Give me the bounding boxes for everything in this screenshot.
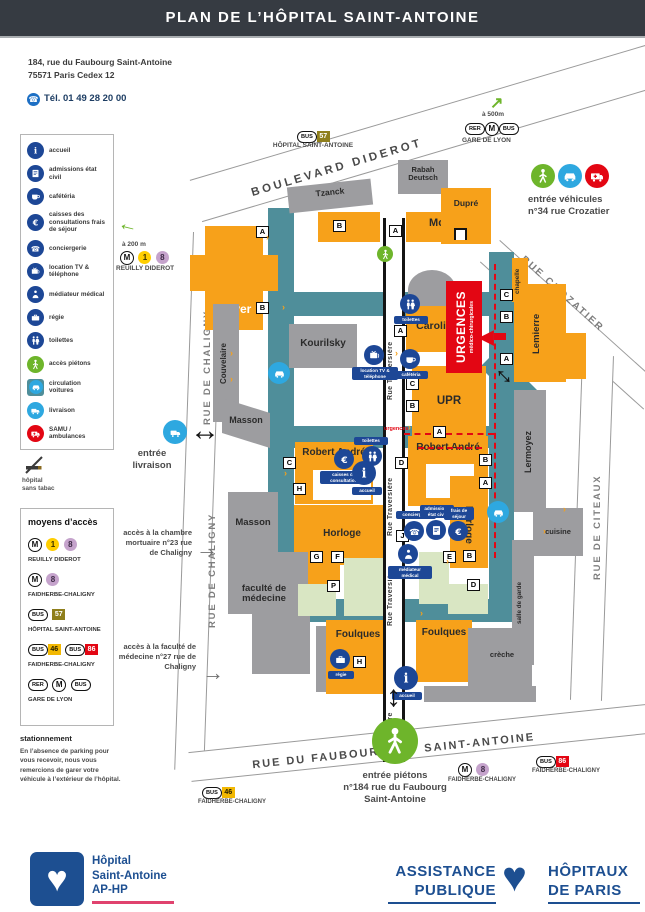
door-chevron <box>310 514 313 524</box>
door-chevron <box>428 642 431 652</box>
dupre-door <box>454 228 467 240</box>
mortuary-access-label: accès à la chambre mortuaire n°23 rue de… <box>120 528 192 557</box>
stop-label: REUILLY DIDEROT <box>116 265 174 272</box>
internal-road-east <box>489 252 514 622</box>
building-label-rabah-deutsch: Rabah Deutsch <box>399 166 447 182</box>
door-chevron <box>395 348 398 358</box>
pedestrian-entrance-icon <box>372 718 418 764</box>
poi-label: régie <box>328 671 354 679</box>
car-icon <box>487 501 509 523</box>
building-label-lermoyez: Lermoyez <box>524 412 534 492</box>
building-letter: B <box>256 302 269 314</box>
legend-item: SAMU / ambulances <box>27 425 107 442</box>
building-mayer-wing <box>190 255 278 291</box>
poi-label: cafétéria <box>394 371 428 379</box>
legend-item: médiateur médical <box>27 286 107 303</box>
ambulance-icon <box>27 425 44 442</box>
building-letter: F <box>331 551 344 563</box>
tv-phone-icon <box>27 263 44 280</box>
door-chevron <box>446 556 449 566</box>
access-box: moyens d’accès M 1 8 REUILLY DIDEROT M 8… <box>20 508 114 726</box>
access-row: BUS46 BUS86 <box>28 641 106 659</box>
building-creche-wing <box>424 686 536 702</box>
mediator-icon <box>398 544 418 564</box>
aphp-logo-left: ASSISTANCE PUBLIQUE <box>388 862 496 904</box>
poi-label: accueil <box>352 487 382 495</box>
building-letter: B <box>500 311 513 323</box>
street-label-citeaux: RUE DE CITEAUX <box>592 455 603 580</box>
toilets-icon <box>27 332 44 349</box>
building-moiana-west <box>318 212 380 242</box>
urgences-arrow-icon <box>479 326 494 349</box>
building-label-faculte: faculté de médecine <box>232 584 296 605</box>
building-letter: D <box>395 457 408 469</box>
pedestrian-icon <box>27 356 44 373</box>
building-label-kourilsky: Kourilsky <box>290 339 356 350</box>
legend-item: conciergerie <box>27 240 107 257</box>
stop-label: FAIDHERBE-CHALIGNY <box>442 777 522 783</box>
building-letter: B <box>479 454 492 466</box>
building-letter: H <box>353 656 366 668</box>
info-icon <box>27 142 44 159</box>
building-letter: B <box>333 220 346 232</box>
conciergerie-icon <box>27 240 44 257</box>
hospital-map-page: PLAN DE L’HÔPITAL SAINT-ANTOINE 184, rue… <box>0 0 645 912</box>
legend-item: accès piétons <box>27 356 107 373</box>
building-letter: P <box>327 580 340 592</box>
no-smoking-label: hôpital sans tabac <box>22 477 55 493</box>
mediator-icon <box>27 286 44 303</box>
pedestrian-entrance-label: entrée piétons n°184 rue du Faubourg Sai… <box>330 770 460 806</box>
legend-item: accueil <box>27 142 107 159</box>
cafeteria-icon <box>400 349 420 369</box>
legend-item: toilettes <box>27 332 107 349</box>
truck-icon <box>27 402 44 419</box>
access-row: M 1 8 <box>28 536 106 554</box>
ambulance-route-return <box>418 447 482 449</box>
legend-item: circulation voitures <box>27 379 107 396</box>
door-chevron <box>230 348 233 358</box>
direction-arrow-icon <box>490 93 503 113</box>
building-letter: B <box>463 550 476 562</box>
building-lemierre-wing <box>566 333 586 379</box>
legend-item: admissions état civil <box>27 165 107 182</box>
building-label-creche: crèche <box>480 651 524 659</box>
urgences-block: URGENCES médico-chirurgicales <box>446 281 482 373</box>
door-chevron <box>282 302 285 312</box>
address-line2: 75571 Paris Cedex 12 <box>28 69 172 82</box>
building-letter: B <box>406 400 419 412</box>
door-chevron <box>484 226 487 236</box>
access-row: M 8 <box>28 571 106 589</box>
legend-item: caisses des consultations frais de séjou… <box>27 211 107 233</box>
header-bar: PLAN DE L’HÔPITAL SAINT-ANTOINE <box>0 0 645 38</box>
briefcase-icon <box>330 649 350 669</box>
stop-label: HÔPITAL SAINT-ANTOINE <box>255 142 371 149</box>
building-letter: G <box>310 551 323 563</box>
poi-label: médiateur médical <box>388 566 432 579</box>
distance-label: à 200 m <box>122 241 146 248</box>
ambulance-route-horizontal <box>404 433 494 435</box>
vehicle-entrance-label: entrée véhicules n°34 rue Crozatier <box>528 194 609 218</box>
pedestrian-icon <box>377 246 393 262</box>
building-label-horloge-west: Horloge <box>316 529 368 540</box>
conciergerie-icon <box>404 521 424 541</box>
two-way-arrow-icon <box>190 414 220 448</box>
building-label-upr: UPR <box>420 395 478 407</box>
poi-label: toilettes <box>394 316 428 324</box>
building-strip <box>316 626 326 692</box>
building-letter: H <box>293 483 306 495</box>
info-icon <box>352 461 376 485</box>
access-row: RER M BUS <box>28 676 106 694</box>
gare-de-lyon-badges: RERMBUS <box>465 120 519 138</box>
door-chevron <box>348 642 351 652</box>
car-icon <box>268 362 290 384</box>
access-title: moyens d’accès <box>28 517 106 527</box>
admissions-icon <box>426 520 446 540</box>
heart-icon <box>502 856 527 898</box>
building-faculte-south <box>252 612 310 674</box>
truck-icon <box>163 420 187 444</box>
euro-icon <box>27 214 44 231</box>
phone-icon <box>27 93 40 106</box>
page-title: PLAN DE L’HÔPITAL SAINT-ANTOINE <box>0 0 645 36</box>
access-row: BUS 57 <box>28 606 106 624</box>
building-letter: A <box>433 426 446 438</box>
urgences-title: URGENCES <box>454 291 468 363</box>
door-chevron <box>230 374 233 384</box>
poi-label: frais de séjour <box>444 507 474 520</box>
hospital-logo <box>30 852 84 906</box>
address-line1: 184, rue du Faubourg Saint-Antoine <box>28 56 172 69</box>
ambulance-icon <box>585 164 609 188</box>
ambulance-route-label: urgences <box>384 426 408 432</box>
poi-label: location TV & téléphone <box>352 367 398 380</box>
building-label-foulques-west: Foulques <box>328 630 388 641</box>
stop-label: FAIDHERBE-CHALIGNY <box>524 768 608 774</box>
toilets-icon <box>400 294 420 314</box>
door-chevron <box>266 232 269 242</box>
euro-icon <box>334 449 354 469</box>
building-label-foulques-east: Foulques <box>417 628 471 639</box>
tv-phone-icon <box>364 345 384 365</box>
admissions-icon <box>27 165 44 182</box>
building-letter: C <box>500 289 513 301</box>
building-letter: D <box>467 579 480 591</box>
legend-item: cafétéria <box>27 188 107 205</box>
street-label-traversiere: Rue Traversière <box>387 466 394 536</box>
car-icon <box>558 164 582 188</box>
door-chevron <box>284 468 287 478</box>
building-label-dupre: Dupré <box>443 199 489 208</box>
car-icon <box>27 379 44 396</box>
legend: accueil admissions état civil cafétéria … <box>20 134 114 450</box>
building-letter: A <box>479 477 492 489</box>
direction-arrow-icon <box>116 212 141 239</box>
legend-item: régie <box>27 309 107 326</box>
distance-label: à 500m <box>482 111 504 118</box>
parking-title: stationnement <box>20 734 122 743</box>
building-label-lemierre: Lemierre <box>532 298 542 370</box>
faculty-access-label: accès à la faculté de médecine n°27 rue … <box>116 642 196 671</box>
urgences-subtitle: médico-chirurgicales <box>469 301 475 353</box>
building-label-cuisine: cuisine <box>535 528 581 536</box>
building-label-masson-north: Masson <box>224 416 268 426</box>
door-chevron <box>352 224 355 234</box>
aphp-logo-right: HÔPITAUX DE PARIS <box>548 862 640 904</box>
building-letter: A <box>389 225 402 237</box>
hospital-logo-text: Hôpital Saint-Antoine AP-HP <box>92 854 167 898</box>
two-way-arrow-icon <box>386 680 401 714</box>
stop-label: GARE DE LYON <box>462 137 511 144</box>
door-chevron <box>420 608 423 618</box>
building-label-couvelaire: Couvelaire <box>220 318 229 410</box>
delivery-entrance-label: entrée livraison <box>118 448 186 472</box>
stop-label: FAIDHERBE-CHALIGNY <box>190 799 274 805</box>
address-block: 184, rue du Faubourg Saint-Antoine 75571… <box>28 56 172 82</box>
legend-item: location TV & téléphone <box>27 263 107 280</box>
building-label-masson-south: Masson <box>230 518 276 528</box>
cafeteria-icon <box>27 188 44 205</box>
poi-label: toilettes <box>354 437 388 445</box>
building-letter: E <box>443 551 456 563</box>
direction-arrow-icon <box>202 660 224 686</box>
building-label-chapelle: chapelle <box>515 262 522 300</box>
phone-number: Tél. 01 49 28 20 00 <box>44 93 126 104</box>
direction-arrow-icon <box>196 536 218 562</box>
street-label-traversiere: Rue Traversière <box>387 330 394 400</box>
door-chevron <box>563 504 566 514</box>
building-letter: A <box>394 325 407 337</box>
heart-icon <box>46 861 67 897</box>
legend-item: livraison <box>27 402 107 419</box>
logo-underline <box>92 901 174 904</box>
parking-text: En l’absence de parking pour vous recevo… <box>20 747 122 784</box>
euro-icon <box>448 521 468 541</box>
parking-note: stationnement En l’absence de parking po… <box>20 734 122 784</box>
door-chevron <box>408 422 411 432</box>
pedestrian-icon <box>531 164 555 188</box>
building-letter: C <box>406 378 419 390</box>
door-chevron <box>543 526 546 536</box>
briefcase-icon <box>27 309 44 326</box>
